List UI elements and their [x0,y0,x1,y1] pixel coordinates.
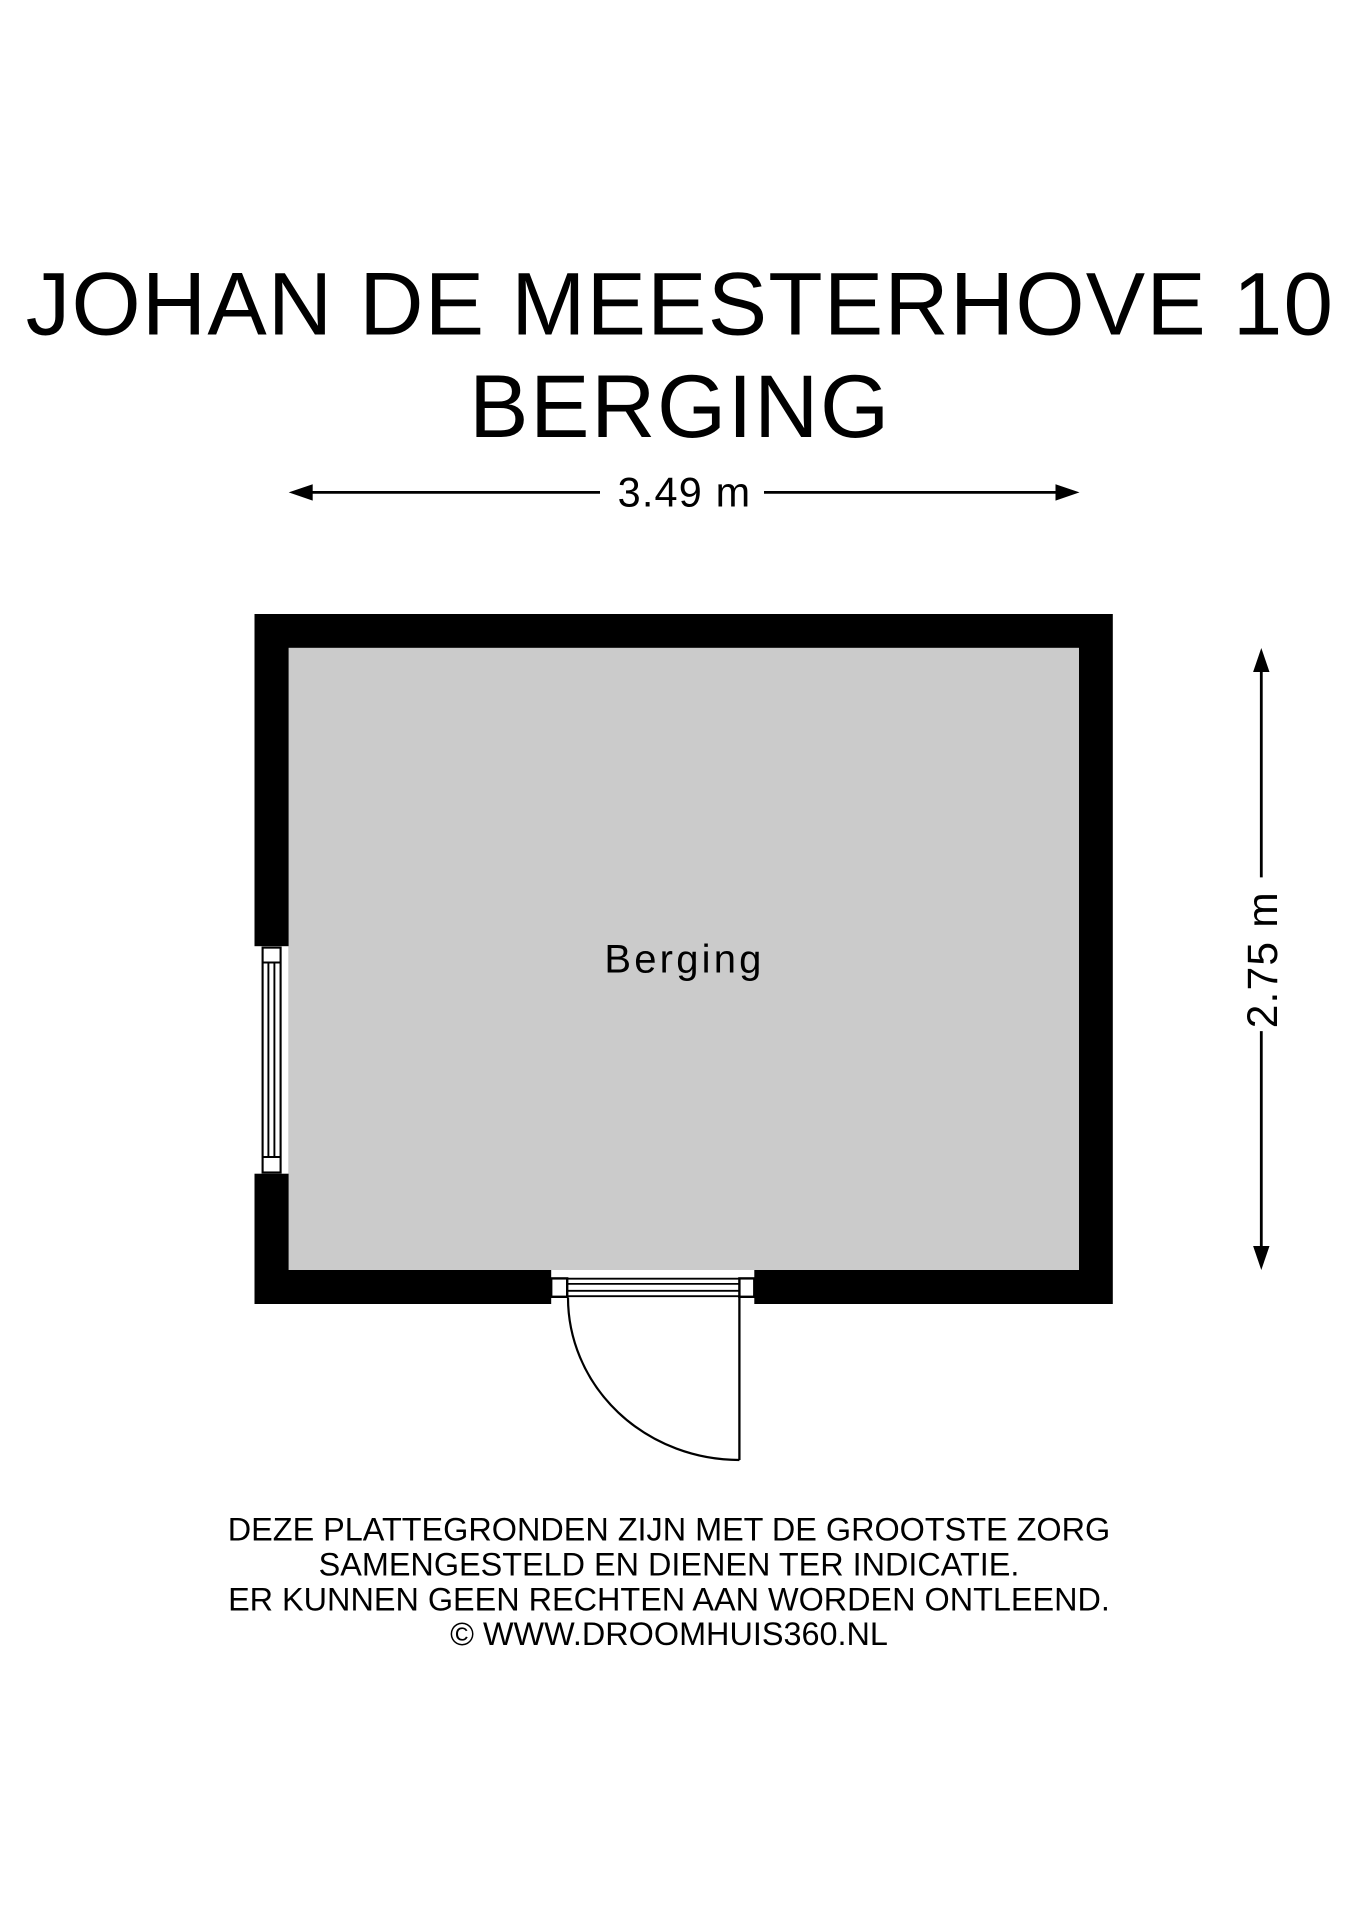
svg-text:ER KUNNEN GEEN RECHTEN AAN WOR: ER KUNNEN GEEN RECHTEN AAN WORDEN ONTLEE… [228,1581,1110,1617]
svg-text:Berging: Berging [604,938,764,982]
svg-text:BERGING: BERGING [469,356,891,456]
svg-text:© WWW.DROOMHUIS360.NL: © WWW.DROOMHUIS360.NL [450,1616,888,1652]
svg-text:DEZE PLATTEGRONDEN ZIJN MET DE: DEZE PLATTEGRONDEN ZIJN MET DE GROOTSTE … [228,1512,1110,1548]
svg-text:3.49 m: 3.49 m [618,470,752,516]
svg-text:2.75 m: 2.75 m [1240,891,1287,1028]
svg-text:SAMENGESTELD EN DIENEN TER IND: SAMENGESTELD EN DIENEN TER INDICATIE. [319,1547,1020,1583]
svg-text:JOHAN DE MEESTERHOVE 10: JOHAN DE MEESTERHOVE 10 [26,254,1335,354]
